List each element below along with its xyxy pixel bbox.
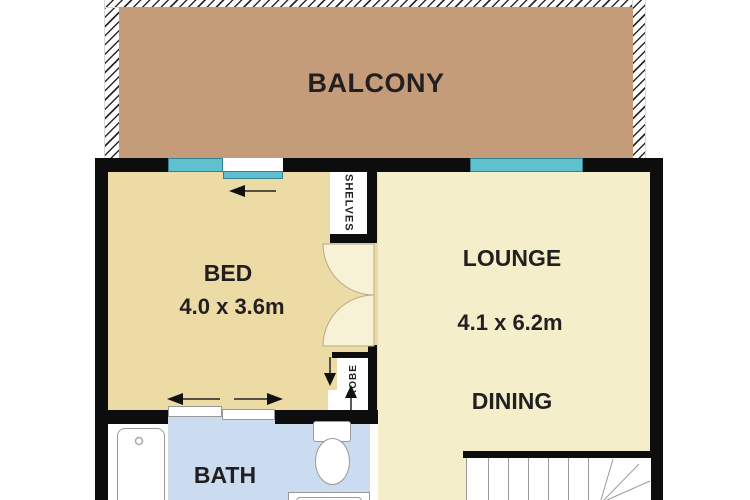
bed-window xyxy=(168,158,223,172)
robe-label: ROBE xyxy=(348,364,359,397)
shelves-label: SHELVES xyxy=(343,174,355,232)
bath-label: BATH xyxy=(145,462,305,488)
balcony-sliding-door-panel xyxy=(223,171,283,179)
balcony-label: BALCONY xyxy=(119,68,633,99)
toilet-bowl xyxy=(315,438,350,485)
bath-sliding-door-panel-right xyxy=(222,409,275,420)
balcony-railing-left xyxy=(105,0,119,158)
robe-closet-step xyxy=(328,390,337,412)
wall-shelves-right xyxy=(367,172,377,243)
bed-dimensions: 4.0 x 3.6m xyxy=(132,294,332,319)
balcony-railing-top xyxy=(105,0,645,7)
robe-label-box: ROBE xyxy=(340,356,366,404)
stairs xyxy=(466,458,651,500)
lounge-dimensions: 4.1 x 6.2m xyxy=(410,310,610,335)
wall-shelves-bottom xyxy=(330,234,377,243)
shelves-closet: SHELVES xyxy=(330,172,367,234)
wall-bath-top-left xyxy=(95,410,168,424)
wall-exterior-right xyxy=(650,158,663,500)
lounge-label: LOUNGE xyxy=(412,245,612,271)
bed-label: BED xyxy=(148,260,308,286)
floorplan-canvas: SHELVES ROBE xyxy=(0,0,750,500)
balcony-sliding-door-opening xyxy=(223,158,283,172)
lounge-window xyxy=(470,158,583,172)
wall-stairs-top xyxy=(463,451,650,458)
dining-label: DINING xyxy=(412,388,612,414)
wall-exterior-left xyxy=(95,158,108,500)
balcony-railing-right xyxy=(633,0,645,158)
bath-sliding-door-panel-left xyxy=(168,406,222,417)
